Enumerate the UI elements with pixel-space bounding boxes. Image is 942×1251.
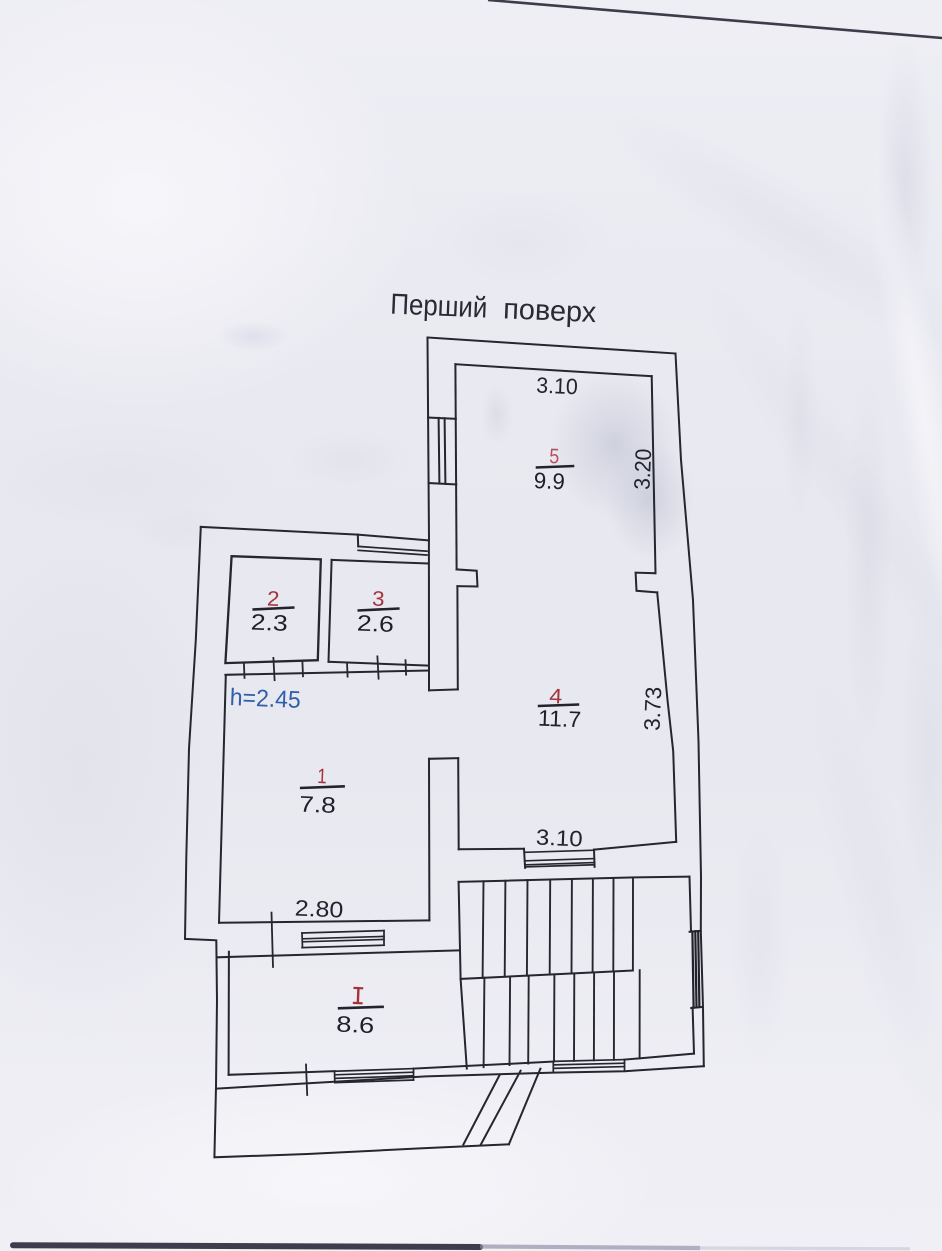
svg-text:11.7: 11.7 bbox=[538, 706, 582, 733]
svg-text:3.73: 3.73 bbox=[640, 686, 667, 731]
svg-text:3.20: 3.20 bbox=[630, 448, 657, 490]
svg-text:9.9: 9.9 bbox=[533, 468, 565, 494]
svg-text:3.10: 3.10 bbox=[536, 373, 579, 400]
svg-text:Перший: Перший bbox=[390, 289, 488, 325]
svg-text:3.10: 3.10 bbox=[535, 825, 583, 852]
svg-text:h=2.45: h=2.45 bbox=[229, 684, 301, 714]
svg-text:2.80: 2.80 bbox=[294, 896, 344, 923]
svg-text:1: 1 bbox=[317, 765, 327, 788]
svg-text:поверх: поверх bbox=[503, 293, 598, 329]
svg-text:5: 5 bbox=[549, 445, 560, 468]
svg-text:3: 3 bbox=[372, 588, 385, 611]
svg-text:2.6: 2.6 bbox=[356, 611, 394, 638]
svg-text:2.3: 2.3 bbox=[250, 610, 288, 637]
svg-text:8.6: 8.6 bbox=[336, 1012, 375, 1039]
svg-text:7.8: 7.8 bbox=[299, 792, 337, 819]
